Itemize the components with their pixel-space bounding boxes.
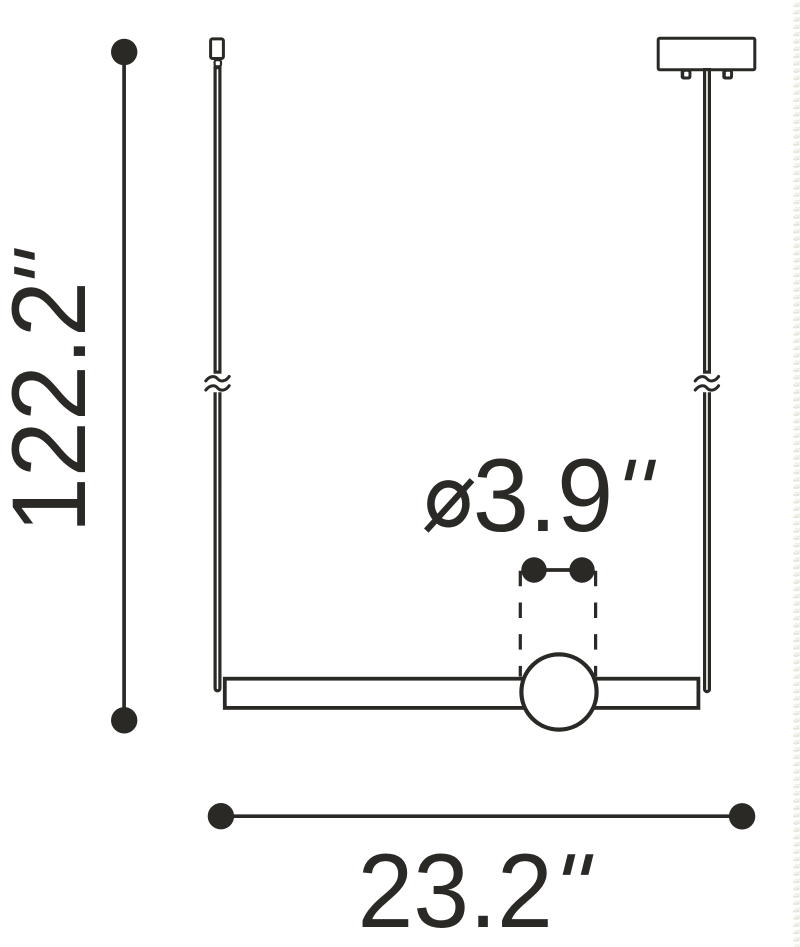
svg-text:3.9: 3.9 xyxy=(473,438,614,554)
svg-text:122.2: 122.2 xyxy=(0,281,108,533)
svg-text:23.2: 23.2 xyxy=(358,833,553,947)
